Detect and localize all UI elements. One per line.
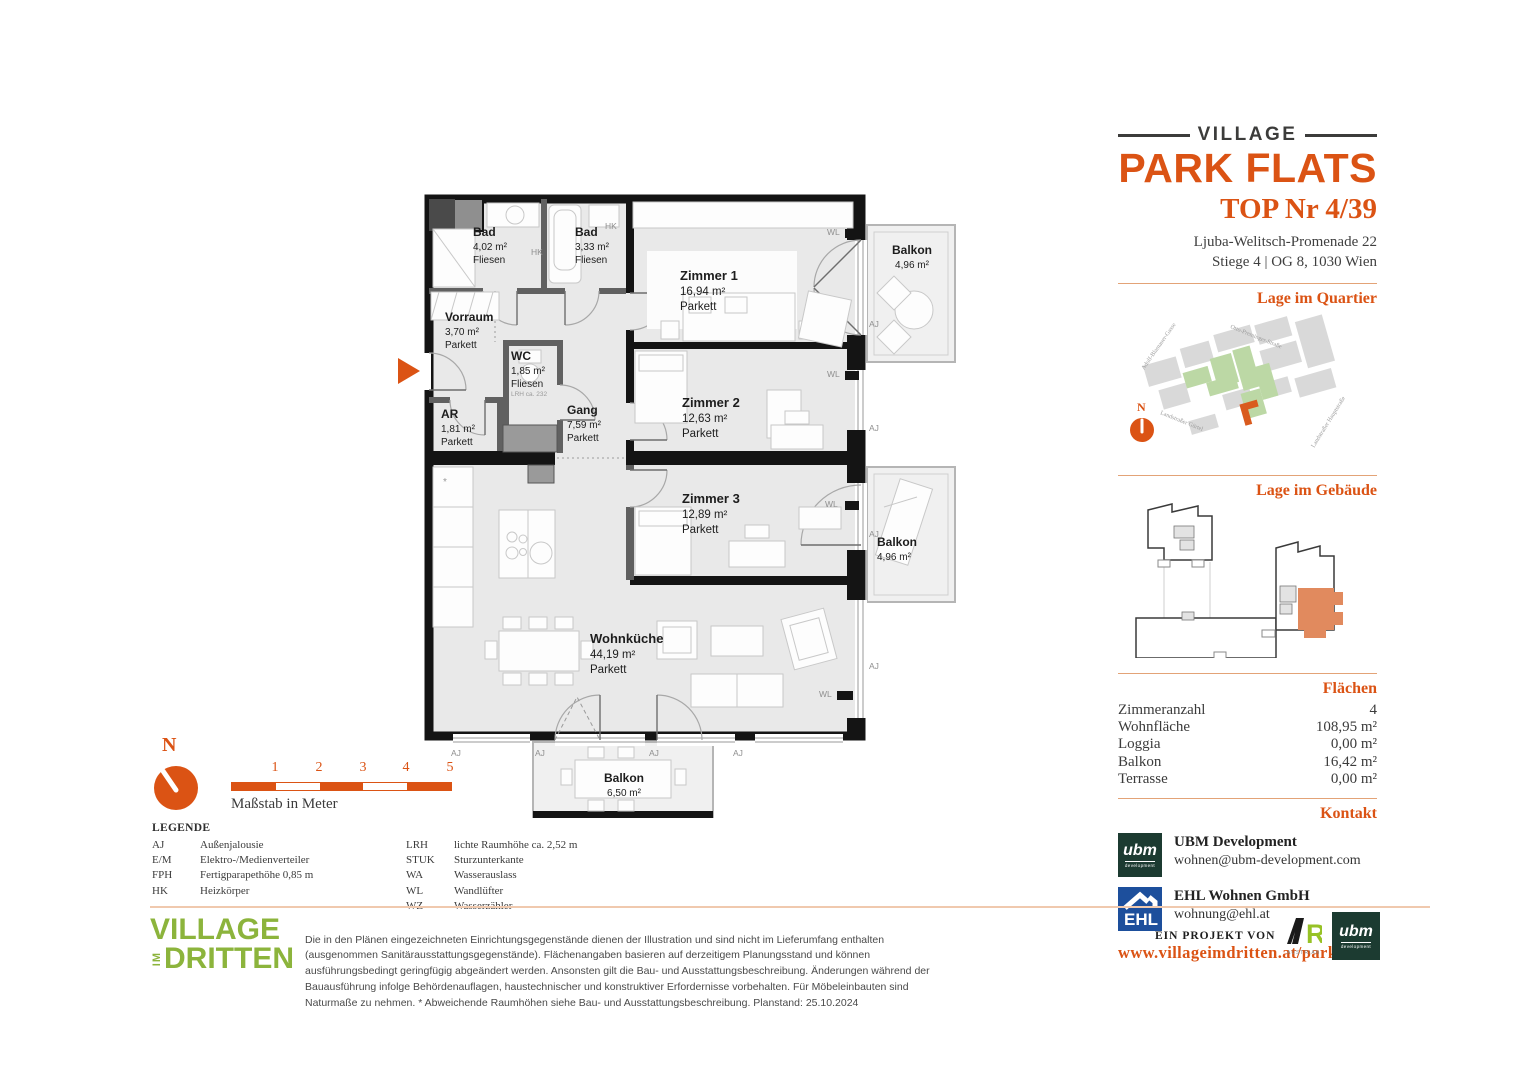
svg-text:RE: RE <box>1306 919 1322 949</box>
divider <box>1118 475 1377 476</box>
legend-text: Sturzunterkante <box>454 853 524 868</box>
table-row: Balkon16,42 m² <box>1118 754 1377 771</box>
room-label-balkon-tr: Balkon4,96 m² <box>879 243 945 272</box>
divider <box>1118 798 1377 799</box>
ubm-logo: ubm development <box>1118 833 1162 877</box>
room-label-wohnkueche: Wohnküche44,19 m²Parkett <box>590 631 663 678</box>
table-row: Wohnfläche108,95 m² <box>1118 719 1377 736</box>
room-label-balkon-mr: Balkon4,96 m² <box>877 535 917 564</box>
legend-abbr: AJ <box>152 838 200 853</box>
svg-text:*: * <box>443 477 447 488</box>
svg-text:EHL: EHL <box>1124 910 1158 929</box>
street-label: Landstraßer Hauptstraße <box>1310 394 1347 448</box>
section-kontakt-title: Kontakt <box>1118 805 1377 823</box>
aj-annotation: AJ <box>869 319 879 329</box>
legend-abbr: LRH <box>406 838 454 853</box>
legend-text: Außenjalousie <box>200 838 264 853</box>
legend-text: Fertigparapethöhe 0,85 m <box>200 868 313 883</box>
aj-annotation: AJ <box>649 748 659 758</box>
section-gebaeude-title: Lage im Gebäude <box>1118 482 1377 500</box>
room-label-bad2: Bad3,33 m²Fliesen <box>575 225 609 267</box>
room-label-zimmer1: Zimmer 116,94 m²Parkett <box>680 268 738 315</box>
legend-text: Elektro-/Medienverteiler <box>200 853 309 868</box>
legend: LEGENDE AJAußenjalousie E/MElektro-/Medi… <box>152 822 792 914</box>
svg-text:AUSTRIAN REAL ESTATE: AUSTRIAN REAL ESTATE <box>1287 950 1322 956</box>
floor-plan: * Bad4,02 m²Fliesen Bad3,33 m²Fliesen Zi… <box>395 185 1025 835</box>
scale-tick: 1 <box>267 760 283 776</box>
village-im-dritten-logo: VILLAGE IMDRITTEN <box>150 916 294 973</box>
area-table: Zimmeranzahl4 Wohnfläche108,95 m² Loggia… <box>1118 702 1377 789</box>
legend-title: LEGENDE <box>152 822 792 834</box>
brand-village-label: VILLAGE <box>1198 124 1298 146</box>
legend-text: lichte Raumhöhe ca. 2,52 m <box>454 838 577 853</box>
wl-annotation: WL <box>819 689 832 699</box>
aj-annotation: AJ <box>869 529 879 539</box>
highlighted-unit <box>1298 588 1334 630</box>
legend-abbr: STUK <box>406 853 454 868</box>
disclaimer-text: Die in den Plänen eingezeichneten Einric… <box>305 933 937 1012</box>
brand-village: VILLAGE <box>1118 124 1377 146</box>
room-label-balkon-bottom: Balkon6,50 m² <box>587 771 661 800</box>
unit-title: TOP Nr 4/39 <box>1118 193 1377 226</box>
aj-annotation: AJ <box>733 748 743 758</box>
scale-bar-segments <box>231 782 452 791</box>
info-sidebar: VILLAGE PARK FLATS TOP Nr 4/39 Ljuba-Wel… <box>1118 124 1377 963</box>
north-compass: N <box>152 738 212 818</box>
scale-tick: 2 <box>311 760 327 776</box>
are-logo: RE AUSTRIAN REAL ESTATE <box>1285 912 1322 960</box>
table-row: Loggia0,00 m² <box>1118 736 1377 753</box>
table-row: Terrasse0,00 m² <box>1118 771 1377 788</box>
wl-annotation: WL <box>827 227 840 237</box>
section-quartier-title: Lage im Quartier <box>1118 290 1377 308</box>
legend-text: Wandlüfter <box>454 884 503 899</box>
aj-annotation: AJ <box>869 423 879 433</box>
quartier-map: Adolf-Blamauer-Gasse Otto-Preminger-Stra… <box>1118 308 1377 460</box>
footer-divider <box>150 906 1430 908</box>
contact-name: UBM Development <box>1174 833 1361 852</box>
building-location-diagram <box>1118 500 1377 658</box>
room-label-ar: AR1,81 m²Parkett <box>441 407 475 449</box>
address: Ljuba-Welitsch-Promenade 22 Stiege 4 | O… <box>1118 232 1377 273</box>
brand-park-flats: PARK FLATS <box>1118 148 1377 189</box>
room-label-gang: Gang7,59 m²Parkett <box>567 403 601 445</box>
floorplan-sheet: * Bad4,02 m²Fliesen Bad3,33 m²Fliesen Zi… <box>0 0 1528 1080</box>
scale-bar: 1 2 3 4 5 Maßstab in Meter <box>231 760 453 820</box>
compass-icon <box>152 762 200 810</box>
legend-abbr: E/M <box>152 853 200 868</box>
scale-tick: 4 <box>398 760 414 776</box>
wl-annotation: WL <box>827 369 840 379</box>
room-label-vorraum: Vorraum3,70 m²Parkett <box>445 310 493 352</box>
contact-name: EHL Wohnen GmbH <box>1174 887 1310 906</box>
ubm-logo: ubm development <box>1332 912 1380 960</box>
legend-abbr: WL <box>406 884 454 899</box>
project-label: EIN PROJEKT VON <box>1155 930 1275 942</box>
hk-annotation: HK <box>531 247 543 257</box>
room-label-bad1: Bad4,02 m²Fliesen <box>473 225 507 267</box>
map-north-label: N <box>1137 400 1146 414</box>
legend-text: Wasserauslass <box>454 868 517 883</box>
aj-annotation: AJ <box>451 748 461 758</box>
room-label-zimmer3: Zimmer 312,89 m²Parkett <box>682 491 740 538</box>
legend-text: Heizkörper <box>200 884 249 899</box>
divider <box>1118 283 1377 284</box>
divider <box>1118 673 1377 674</box>
scale-tick: 5 <box>442 760 458 776</box>
scale-tick: 3 <box>355 760 371 776</box>
contact-ubm: ubm development UBM Development wohnen@u… <box>1118 833 1377 877</box>
scale-caption: Maßstab in Meter <box>231 796 338 813</box>
legend-abbr: HK <box>152 884 200 899</box>
hk-annotation: HK <box>605 221 617 231</box>
legend-abbr: FPH <box>152 868 200 883</box>
table-row: Zimmeranzahl4 <box>1118 702 1377 719</box>
aj-annotation: AJ <box>869 661 879 671</box>
north-label: N <box>162 734 176 757</box>
aj-annotation: AJ <box>535 748 545 758</box>
section-flaechen-title: Flächen <box>1118 680 1377 698</box>
project-credits: EIN PROJEKT VON RE AUSTRIAN REAL ESTATE … <box>1155 912 1380 960</box>
room-label-zimmer2: Zimmer 212,63 m²Parkett <box>682 395 740 442</box>
legend-abbr: WA <box>406 868 454 883</box>
entrance-arrow-icon <box>398 358 420 384</box>
wl-annotation: WL <box>825 499 838 509</box>
contact-email[interactable]: wohnen@ubm-development.com <box>1174 852 1361 870</box>
room-label-wc: WC1,85 m²FliesenLRH ca. 232 <box>511 349 547 399</box>
